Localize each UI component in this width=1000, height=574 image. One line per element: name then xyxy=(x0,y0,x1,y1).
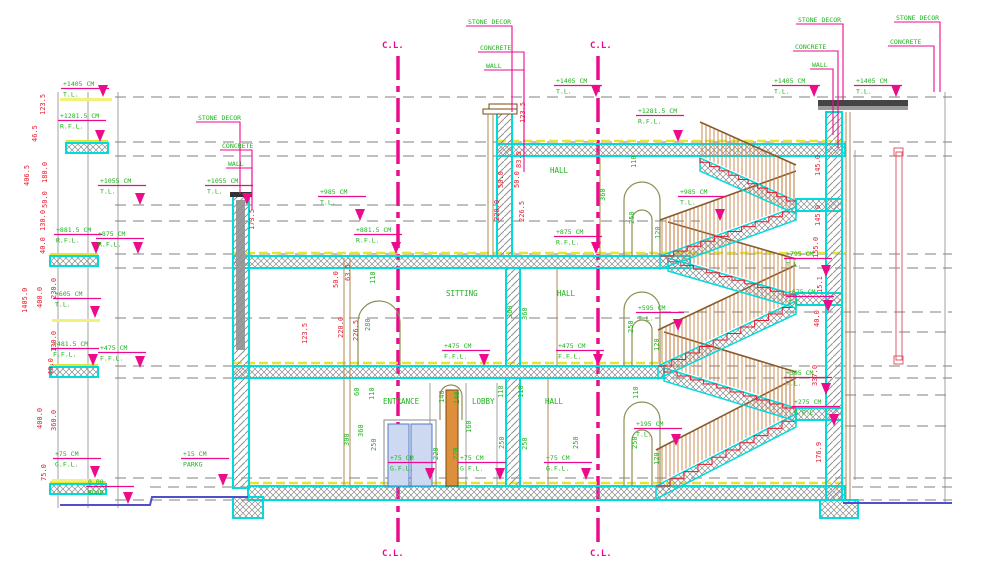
dimension-text: 110 xyxy=(368,387,376,400)
level-name: T.L. xyxy=(856,88,872,96)
first-floor-slab xyxy=(233,366,664,378)
dimension-text: 83.5 xyxy=(515,151,523,168)
dimension-text: 120 xyxy=(653,338,661,351)
level-name: G.F.L. xyxy=(546,465,569,473)
dimension-text: 250 xyxy=(627,320,635,333)
dimension-text: 50.0 xyxy=(497,171,505,188)
level-value: +595 CM xyxy=(638,304,665,312)
dimension-text: 60 xyxy=(353,388,361,396)
right-cornice-dark xyxy=(818,100,908,106)
dimension-text: 220 xyxy=(432,447,440,460)
level-value: +75 CM xyxy=(390,454,414,462)
level-value: +1281.5 CM xyxy=(638,107,677,115)
level-name: R.F.L. xyxy=(556,239,579,247)
dimension-text: 226.5 xyxy=(518,201,526,222)
level-name: R.F.L. xyxy=(56,237,79,245)
dimension-text: 110 xyxy=(369,271,377,284)
level-name: G.F.L. xyxy=(55,461,78,469)
level-name: R.F.L. xyxy=(98,241,121,249)
dimension-text: 360 xyxy=(521,307,529,320)
dimension-text: 1405.0 xyxy=(21,288,29,313)
centerline-label: C.L. xyxy=(590,549,612,559)
dimension-text: 220.0 xyxy=(337,317,345,338)
dimension-text: 250 xyxy=(521,437,529,450)
dimension-text: 40.0 xyxy=(47,358,55,375)
dimension-text: 250 xyxy=(572,436,580,449)
level-name: T.L. xyxy=(207,188,223,196)
level-value: 0.00 xyxy=(88,478,104,486)
level-value: +1405 CM xyxy=(856,77,887,85)
level-name: T.L. xyxy=(786,261,802,269)
dimension-text: 123.5 xyxy=(301,323,309,344)
sitting-arch xyxy=(358,301,400,366)
dimension-text: 360 xyxy=(357,424,365,437)
dimension-text: 360 xyxy=(599,188,607,201)
level-value: +881.5 CM xyxy=(56,226,91,234)
leader-note: WALL xyxy=(812,61,828,69)
level-value: +875 CM xyxy=(98,230,125,238)
dimension-text: 406.5 xyxy=(23,165,31,186)
level-value: +475 CM xyxy=(444,342,471,350)
right-cornice-light xyxy=(818,106,908,110)
dimension-text: 300 xyxy=(343,433,351,446)
level-value: +15 CM xyxy=(183,450,207,458)
dimension-text: 110 xyxy=(630,155,638,168)
dimension-text: 250 xyxy=(628,211,636,224)
level-value: +1405 CM xyxy=(63,80,94,88)
level-name: T.L. xyxy=(55,301,71,309)
dimension-text: 250 xyxy=(498,436,506,449)
dimension-text: 46.5 xyxy=(31,125,39,142)
level-name: F.F.L. xyxy=(100,355,123,363)
roof-slab xyxy=(497,144,845,156)
level-name: PARKG xyxy=(183,461,203,469)
level-value: +475 CM xyxy=(558,342,585,350)
leader-note: STONE DECOR xyxy=(896,14,939,22)
level-value: +1405 CM xyxy=(556,77,587,85)
level-name: G.F.L. xyxy=(460,465,483,473)
leader-note: CONCRETE xyxy=(890,38,921,46)
leader-note: STONE DECOR xyxy=(468,18,511,26)
leader-note: WALL xyxy=(228,160,244,168)
level-name: R.F.L. xyxy=(60,123,83,131)
level-value: +1281.5 CM xyxy=(60,112,99,120)
dimension-text: 120 xyxy=(653,452,661,465)
dimension-text: 50.0 xyxy=(41,191,49,208)
level-marker-triangle xyxy=(593,354,603,366)
level-value: +1055 CM xyxy=(207,177,238,185)
leader-note: STONE DECOR xyxy=(798,16,841,24)
section-drawing-canvas: C.L.C.L.C.L.C.L.HALLSITTINGHALLENTRANCEL… xyxy=(0,0,1000,574)
level-name: T.L. xyxy=(320,199,336,207)
level-value: +1055 CM xyxy=(100,177,131,185)
centerline-label: C.L. xyxy=(382,41,404,51)
room-label: HALL xyxy=(550,166,569,175)
centerline-label: C.L. xyxy=(590,41,612,51)
dimension-text: 140 xyxy=(453,391,461,404)
dimension-text: 220 xyxy=(452,447,460,460)
level-value: +875 CM xyxy=(556,228,583,236)
level-marker-triangle xyxy=(90,466,100,478)
room-label: LOBBY xyxy=(472,397,495,406)
centerline-label: C.L. xyxy=(382,549,404,559)
level-name: R.F.L. xyxy=(356,237,379,245)
level-value: +795 CM xyxy=(786,250,813,258)
level-value: +75 CM xyxy=(546,454,570,462)
dimension-text: 145.0 xyxy=(814,205,822,226)
dimension-text: 75.0 xyxy=(40,464,48,481)
level-marker-triangle xyxy=(133,242,143,254)
level-value: +75 CM xyxy=(460,454,484,462)
level-name: T.L. xyxy=(786,380,802,388)
dimension-text: 173.5 xyxy=(248,209,256,230)
left-exterior-wall xyxy=(233,196,249,488)
level-value: +605 CM xyxy=(55,290,82,298)
dimension-text: 160 xyxy=(465,420,473,433)
level-value: +195 CM xyxy=(636,420,663,428)
leader-note: WALL xyxy=(486,62,502,70)
level-marker-triangle xyxy=(218,474,228,486)
level-marker-triangle xyxy=(355,209,365,221)
level-value: +1405 CM xyxy=(774,77,805,85)
dimension-text: 400.0 xyxy=(36,287,44,308)
level-value: +275 CM xyxy=(794,398,821,406)
dimension-text: 120 xyxy=(654,226,662,239)
room-label: HALL xyxy=(557,289,576,298)
cad-section-svg: C.L.C.L.C.L.C.L.HALLSITTINGHALLENTRANCEL… xyxy=(0,0,1000,574)
level-name: T.L. xyxy=(774,88,790,96)
level-value: +985 CM xyxy=(680,188,707,196)
ground-slab xyxy=(248,486,845,500)
level-name: G.F.L. xyxy=(390,465,413,473)
level-name: T.L. xyxy=(636,431,652,439)
level-name: T.L. xyxy=(100,188,116,196)
dimension-text: 226.5 xyxy=(352,320,360,341)
dimension-text: 110 xyxy=(497,385,505,398)
level-value: +395 CM xyxy=(786,369,813,377)
level-name: T.L. xyxy=(63,91,79,99)
dimension-text: 140 xyxy=(438,390,446,403)
dimension-text: 15.1 xyxy=(816,276,824,293)
level-value: +675 CM xyxy=(788,288,815,296)
dimension-text: 280 xyxy=(364,318,372,331)
dimension-text: 360 xyxy=(506,305,514,318)
level-name: F.F.L. xyxy=(444,353,467,361)
level-marker-triangle xyxy=(98,85,108,97)
level-marker-triangle xyxy=(90,306,100,318)
level-marker-triangle xyxy=(891,85,901,97)
level-marker-triangle xyxy=(135,193,145,205)
level-marker-triangle xyxy=(809,85,819,97)
level-name: ROAD xyxy=(88,489,104,497)
leader-note: CONCRETE xyxy=(480,44,511,52)
niche-arch-gf xyxy=(624,402,660,486)
level-name: T.L. xyxy=(788,299,804,307)
level-marker-triangle xyxy=(479,354,489,366)
annotations: C.L.C.L.C.L.C.L.HALLSITTINGHALLENTRANCEL… xyxy=(21,14,940,559)
leader-note: CONCRETE xyxy=(795,43,826,51)
second-floor-slab xyxy=(233,256,690,268)
leader-line xyxy=(894,22,940,92)
level-name: F.F.L. xyxy=(558,353,581,361)
dimension-text: 40.0 xyxy=(813,310,821,327)
room-label: ENTRANCE xyxy=(383,397,420,406)
dimension-text: 110 xyxy=(517,385,525,398)
room-label: HALL xyxy=(545,397,564,406)
niche-arch-1f-inner xyxy=(632,320,652,366)
level-value: +881.5 CM xyxy=(356,226,391,234)
dimension-text: 123.5 xyxy=(519,102,527,123)
level-name: R.F.L. xyxy=(638,118,661,126)
dimension-text: 110 xyxy=(632,386,640,399)
dimension-text: 176.9 xyxy=(815,442,823,463)
leader-note: CONCRETE xyxy=(222,142,253,150)
center-cornice-upper xyxy=(489,104,517,109)
dimension-text: 50.0 xyxy=(513,171,521,188)
level-name: G.P.L. xyxy=(794,409,817,417)
level-marker-triangle xyxy=(123,492,133,504)
leader-note: STONE DECOR xyxy=(198,114,241,122)
dimension-text: 50.0 xyxy=(332,271,340,288)
level-name: F.F.L. xyxy=(53,351,76,359)
level-name: T.L. xyxy=(680,199,696,207)
dimension-text: 400.0 xyxy=(36,408,44,429)
room-label: SITTING xyxy=(446,289,478,298)
dimension-text: 220.0 xyxy=(493,200,501,221)
dimension-text: 130.0 xyxy=(39,210,47,231)
right-guide-rect xyxy=(896,152,902,360)
level-value: +75 CM xyxy=(55,450,79,458)
level-name: T.L. xyxy=(638,315,654,323)
dimension-text: 360.0 xyxy=(50,410,58,431)
dimension-text: 63.5 xyxy=(344,264,352,281)
level-value: +475 CM xyxy=(100,344,127,352)
level-name: T.L. xyxy=(556,88,572,96)
dimension-text: 145.0 xyxy=(814,155,822,176)
dimension-text: 123.5 xyxy=(39,94,47,115)
dimension-text: 250 xyxy=(370,438,378,451)
dimension-text: 180.0 xyxy=(41,162,49,183)
left-footing xyxy=(233,497,263,518)
dimension-text: 40.0 xyxy=(39,237,47,254)
level-value: +985 CM xyxy=(320,188,347,196)
level-value: +481.5 CM xyxy=(53,340,88,348)
